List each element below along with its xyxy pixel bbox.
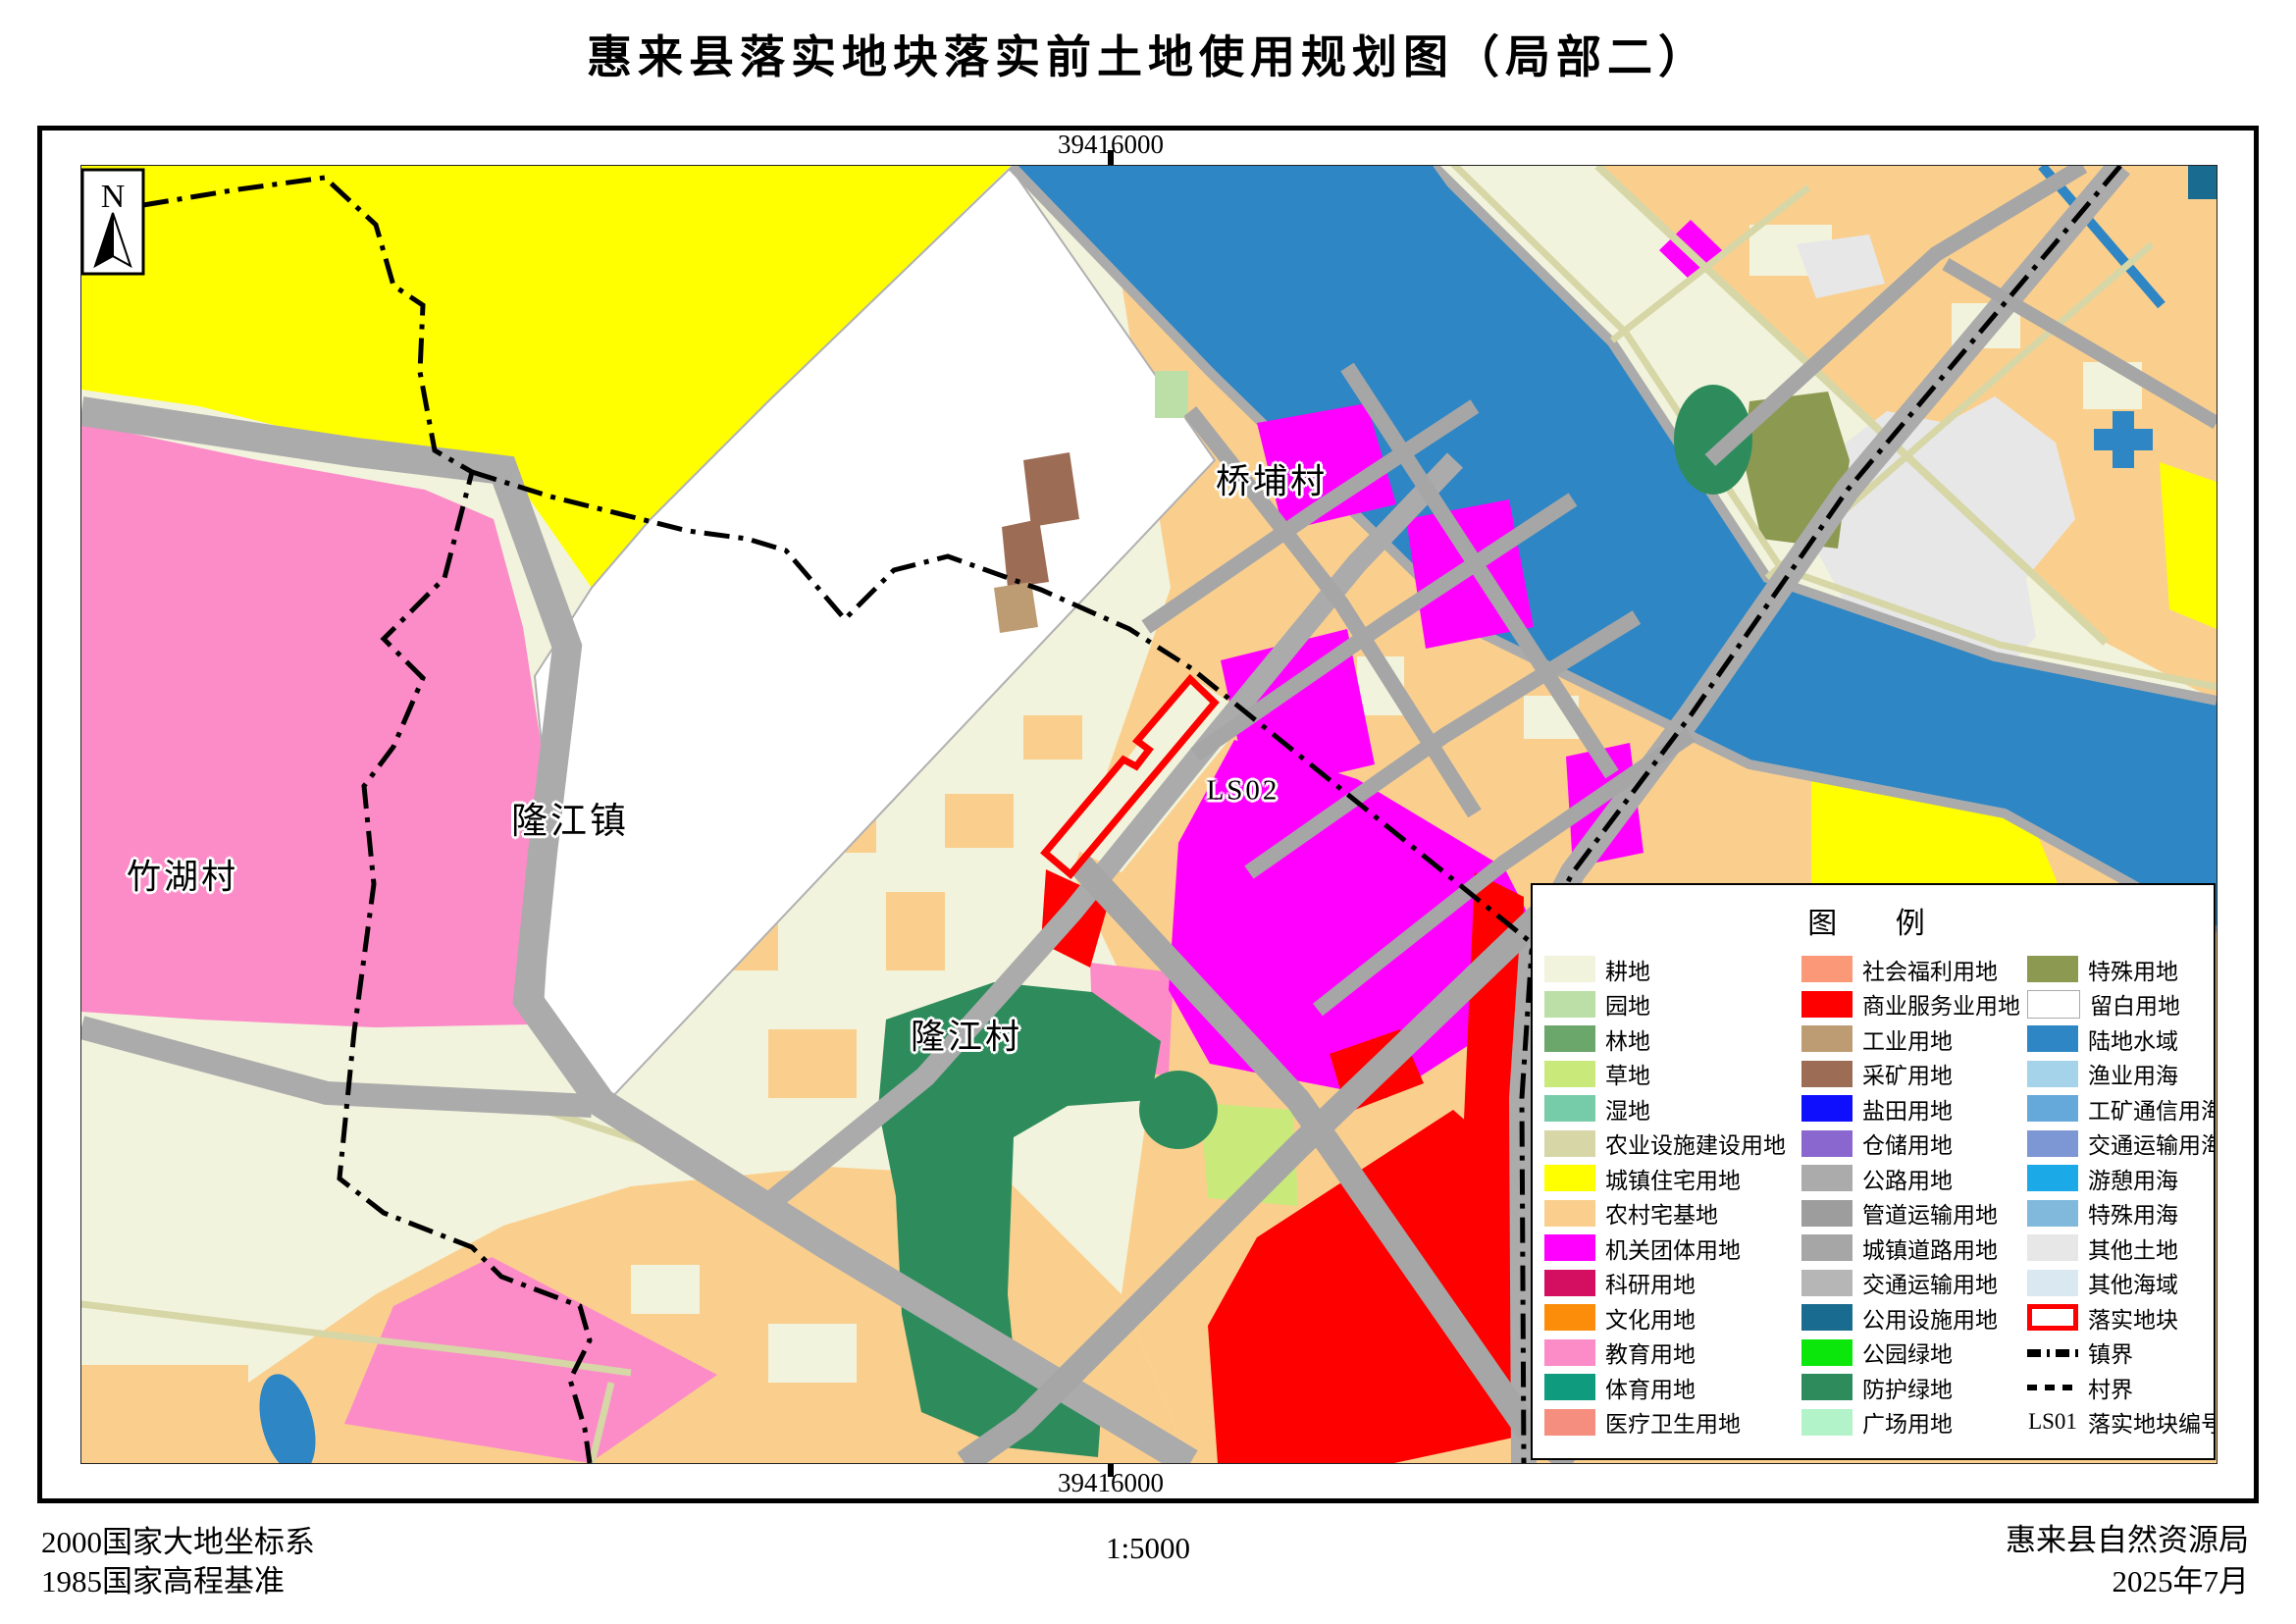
legend-item-label: 公用设施用地: [1862, 1301, 1998, 1335]
legend-swatch: [1544, 1025, 1595, 1052]
legend-item-label: 城镇住宅用地: [1605, 1162, 1741, 1195]
legend-item: 广场用地: [1801, 1405, 2027, 1441]
legend-swatch: [1801, 1130, 1852, 1157]
utilities-parcel: [2188, 166, 2217, 199]
legend-item: 陆地水域: [2027, 1022, 2216, 1057]
legend-swatch: [1544, 1200, 1595, 1227]
legend-item-label: 商业服务业用地: [1862, 987, 2020, 1021]
legend-swatch: [1801, 1095, 1852, 1122]
legend-item: 城镇住宅用地: [1544, 1161, 1801, 1196]
legend-item-label: 园地: [1605, 987, 1650, 1021]
legend-swatch: [1801, 1339, 1852, 1366]
legend-item: 盐田用地: [1801, 1091, 2027, 1126]
legend-item: 仓储用地: [1801, 1126, 2027, 1162]
legend-item-label: 特殊用海: [2088, 1196, 2178, 1230]
legend-swatch: [1801, 956, 1852, 982]
datum-line-1: 2000国家大地坐标系: [41, 1517, 315, 1561]
legend-swatch: [2027, 990, 2080, 1019]
legend-item-label: 其他土地: [2088, 1231, 2178, 1265]
legend-item: 工矿通信用海: [2027, 1091, 2216, 1126]
legend-swatch: [1544, 1061, 1595, 1087]
legend-swatch: [1801, 1025, 1852, 1052]
legend-swatch: [2027, 1025, 2078, 1052]
legend-swatch: [1544, 1304, 1595, 1331]
legend-item-label: 广场用地: [1862, 1405, 1953, 1439]
legend-item-label: 耕地: [1605, 953, 1650, 986]
legend-item-label: 农村宅基地: [1605, 1196, 1718, 1230]
legend-item-label: 采矿用地: [1862, 1057, 1953, 1090]
legend-swatch: [1801, 1304, 1852, 1331]
legend-item: 教育用地: [1544, 1336, 1801, 1371]
legend-item: 草地: [1544, 1057, 1801, 1092]
legend-item-label: 公路用地: [1862, 1162, 1953, 1195]
legend-item: 社会福利用地: [1801, 952, 2027, 987]
legend-item: 医疗卫生用地: [1544, 1405, 1801, 1441]
legend-item-label: 草地: [1605, 1057, 1650, 1090]
town-boundary-symbol: [2027, 1339, 2078, 1366]
legend-item: 防护绿地: [1801, 1370, 2027, 1405]
legend-item: 公用设施用地: [1801, 1300, 2027, 1336]
legend-swatch: [2027, 956, 2078, 982]
legend-item-label: 科研用地: [1605, 1266, 1696, 1299]
legend-item: 耕地: [1544, 952, 1801, 987]
legend-title: 图 例: [1544, 899, 2214, 942]
legend-item: LS01落实地块编号: [2027, 1405, 2216, 1441]
legend-item-label: 林地: [1605, 1022, 1650, 1056]
legend-item: 农业设施建设用地: [1544, 1126, 1801, 1162]
legend-item-label: 管道运输用地: [1862, 1196, 1998, 1230]
legend-swatch: [1544, 1270, 1595, 1296]
legend-item-label: 农业设施建设用地: [1605, 1126, 1786, 1160]
legend-swatch: [2027, 1234, 2078, 1261]
legend-item: 特殊用海: [2027, 1196, 2216, 1231]
legend-item-label: 机关团体用地: [1605, 1231, 1741, 1265]
legend-item: 公路用地: [1801, 1161, 2027, 1196]
legend-item-label: 游憩用海: [2088, 1162, 2178, 1195]
legend-item: 机关团体用地: [1544, 1231, 1801, 1266]
legend-swatch: [1801, 1165, 1852, 1191]
legend-item-label: 工矿通信用海: [2088, 1092, 2216, 1126]
legend-item: 其他土地: [2027, 1231, 2216, 1266]
legend-swatch: [1544, 991, 1595, 1018]
legend-swatch: [2027, 1200, 2078, 1227]
page-title: 惠来县落实地块落实前土地使用规划图（局部二）: [0, 22, 2296, 86]
legend-item: 公园绿地: [1801, 1336, 2027, 1371]
legend-item-label: 交通运输用海: [2088, 1126, 2216, 1160]
agency-label: 惠来县自然资源局: [1668, 1515, 2249, 1559]
legend-item-label: 特殊用地: [2088, 953, 2178, 986]
legend-swatch: [2027, 1130, 2078, 1157]
legend-swatch: [1801, 1234, 1852, 1261]
legend-swatch: [2027, 1095, 2078, 1122]
scale-label: 1:5000: [1070, 1531, 1226, 1566]
datum-line-2: 1985国家高程基准: [41, 1556, 285, 1600]
legend-swatch: [1544, 1374, 1595, 1400]
legend-item-label: 村界: [2088, 1371, 2133, 1404]
legend-item-label: 体育用地: [1605, 1371, 1696, 1404]
legend-item-label: 盐田用地: [1862, 1092, 1953, 1126]
legend-swatch: [1544, 1409, 1595, 1436]
legend-swatch: [1544, 1339, 1595, 1366]
north-arrow: N: [82, 170, 143, 274]
grid-tick-top: [1108, 150, 1114, 165]
legend-panel: 图 例 耕地园地林地草地湿地农业设施建设用地城镇住宅用地农村宅基地机关团体用地科…: [1531, 883, 2216, 1460]
legend-swatch: [1544, 1130, 1595, 1157]
legend-item: 文化用地: [1544, 1300, 1801, 1336]
legend-item-label: 工业用地: [1862, 1022, 1953, 1056]
legend-item-label: 仓储用地: [1862, 1126, 1953, 1160]
legend-swatch: [2027, 1270, 2078, 1296]
legend-swatch: [1544, 1095, 1595, 1122]
legend-item: 工业用地: [1801, 1022, 2027, 1057]
legend-item-label: 文化用地: [1605, 1301, 1696, 1335]
legend-item: 湿地: [1544, 1091, 1801, 1126]
legend-item: 体育用地: [1544, 1370, 1801, 1405]
legend-swatch: [2027, 1061, 2078, 1087]
legend-swatch: [1801, 1270, 1852, 1296]
legend-item: 渔业用海: [2027, 1057, 2216, 1092]
legend-item: 城镇道路用地: [1801, 1231, 2027, 1266]
legend-item-label: 落实地块: [2088, 1301, 2178, 1335]
legend-column-3: 特殊用地留白用地陆地水域渔业用海工矿通信用海交通运输用海游憩用海特殊用海其他土地…: [2027, 952, 2216, 1440]
legend-item-label: 防护绿地: [1862, 1371, 1953, 1404]
legend-item: 交通运输用地: [1801, 1266, 2027, 1301]
legend-columns: 耕地园地林地草地湿地农业设施建设用地城镇住宅用地农村宅基地机关团体用地科研用地文…: [1544, 952, 2214, 1440]
legend-item-label: 镇界: [2088, 1336, 2133, 1369]
legend-item: 管道运输用地: [1801, 1196, 2027, 1231]
parcel-code-symbol: LS01: [2027, 1409, 2078, 1435]
legend-item-label: 落实地块编号: [2088, 1405, 2216, 1439]
legend-item-label: 渔业用海: [2088, 1057, 2178, 1090]
legend-item: 村界: [2027, 1370, 2216, 1405]
legend-item: 交通运输用海: [2027, 1126, 2216, 1162]
village-boundary-symbol: [2027, 1374, 2078, 1400]
legend-item-label: 城镇道路用地: [1862, 1231, 1998, 1265]
legend-swatch: [1801, 1374, 1852, 1400]
legend-item-label: 其他海域: [2088, 1266, 2178, 1299]
legend-column-2: 社会福利用地商业服务业用地工业用地采矿用地盐田用地仓储用地公路用地管道运输用地城…: [1801, 952, 2027, 1440]
legend-item: 落实地块: [2027, 1300, 2216, 1336]
legend-item-label: 交通运输用地: [1862, 1266, 1998, 1299]
coordinate-label-bottom: 39416000: [964, 1468, 1258, 1498]
legend-item: 游憩用海: [2027, 1161, 2216, 1196]
legend-item: 镇界: [2027, 1336, 2216, 1371]
legend-item: 其他海域: [2027, 1266, 2216, 1301]
legend-swatch: [1801, 1061, 1852, 1087]
legend-swatch: [1801, 1409, 1852, 1436]
parcel-outline-symbol: [2027, 1304, 2078, 1331]
legend-item: 科研用地: [1544, 1266, 1801, 1301]
legend-item: 林地: [1544, 1022, 1801, 1057]
legend-swatch: [1544, 1234, 1595, 1261]
legend-swatch: [2027, 1165, 2078, 1191]
legend-swatch: [1544, 956, 1595, 982]
legend-item-label: 社会福利用地: [1862, 953, 1998, 986]
legend-item: 农村宅基地: [1544, 1196, 1801, 1231]
legend-item: 特殊用地: [2027, 952, 2216, 987]
legend-item-label: 留白用地: [2090, 987, 2180, 1021]
legend-item-label: 教育用地: [1605, 1336, 1696, 1369]
legend-swatch: [1801, 1200, 1852, 1227]
legend-item-label: 湿地: [1605, 1092, 1650, 1126]
legend-item: 商业服务业用地: [1801, 987, 2027, 1022]
legend-item-label: 医疗卫生用地: [1605, 1405, 1741, 1439]
date-label: 2025年7月: [1668, 1556, 2249, 1600]
legend-column-1: 耕地园地林地草地湿地农业设施建设用地城镇住宅用地农村宅基地机关团体用地科研用地文…: [1544, 952, 1801, 1440]
legend-item: 园地: [1544, 987, 1801, 1022]
legend-item: 采矿用地: [1801, 1057, 2027, 1092]
legend-swatch: [1801, 991, 1852, 1018]
legend-item-label: 陆地水域: [2088, 1022, 2178, 1056]
planning-map-page: 惠来县落实地块落实前土地使用规划图（局部二） 39416000 39416000: [0, 0, 2296, 1624]
legend-item: 留白用地: [2027, 987, 2216, 1022]
north-arrow-n: N: [101, 179, 126, 215]
legend-swatch: [1544, 1165, 1595, 1191]
legend-item-label: 公园绿地: [1862, 1336, 1953, 1369]
